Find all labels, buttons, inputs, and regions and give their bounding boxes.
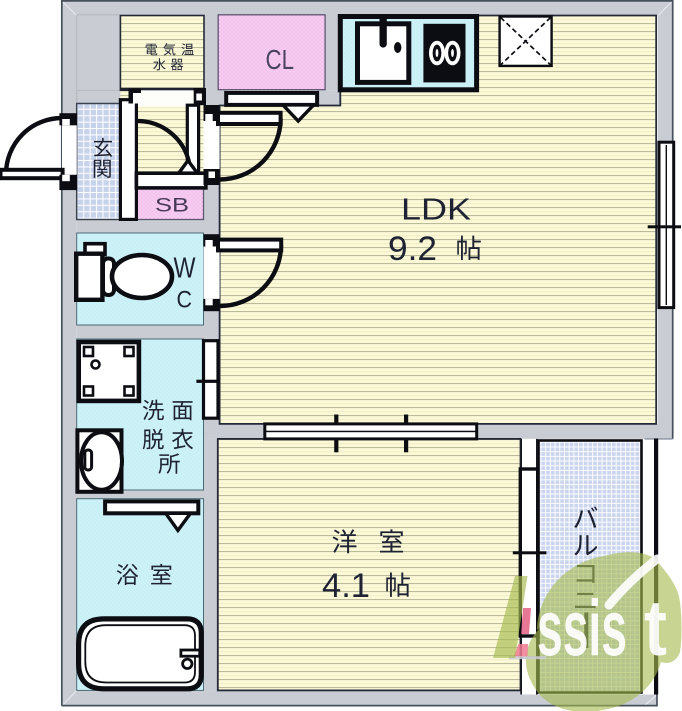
svg-text:9.2: 9.2	[388, 230, 437, 268]
svg-text:LDK: LDK	[401, 192, 471, 227]
svg-text:t: t	[644, 583, 667, 672]
svg-text:W: W	[174, 253, 197, 285]
svg-text:C: C	[177, 287, 193, 314]
svg-text:ssis: ssis	[537, 583, 627, 672]
svg-text:CL: CL	[266, 44, 295, 75]
svg-text:4.1: 4.1	[322, 567, 370, 605]
svg-text:SB: SB	[155, 196, 189, 217]
